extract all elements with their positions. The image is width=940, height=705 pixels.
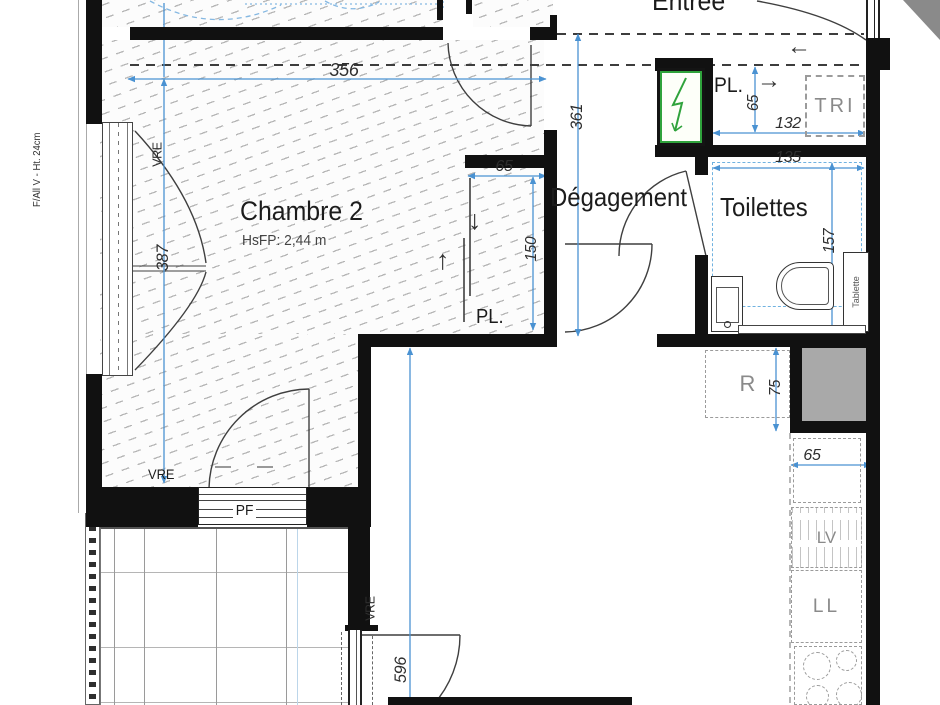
wall (388, 697, 632, 705)
fridge-label: R (740, 371, 756, 397)
chambre2-door-swing (448, 43, 531, 126)
toilet-bowl (781, 267, 829, 305)
wall (358, 347, 371, 487)
wall (530, 27, 557, 40)
upper-room-door-swings (150, 1, 443, 20)
wall (695, 255, 708, 341)
sejour-window-axis-left (341, 632, 343, 705)
wall (695, 150, 708, 175)
wall (466, 0, 472, 14)
dim-entree-closet-width: 132 (762, 115, 814, 133)
wall (358, 334, 557, 347)
burner (836, 650, 857, 671)
dim-counter-depth: 65 (790, 447, 834, 465)
shelf-label: Tablette (851, 276, 861, 308)
left-window-tag: VRE (150, 126, 165, 183)
dim-duct-width: 75 (767, 360, 785, 417)
tri-sorting-zone: TRI (805, 75, 865, 137)
washing-machine-label: LL (813, 596, 840, 618)
left-window-casement-bottom (135, 272, 206, 370)
washbasin-tap (724, 321, 731, 328)
wall (544, 130, 557, 341)
entree-closet-label: PL. (714, 74, 743, 98)
dim-chambre-depth: 387 (153, 230, 173, 287)
toilettes-door-leaf (686, 171, 706, 256)
entree-door-frame (866, 0, 880, 38)
sejour-window (348, 630, 362, 705)
tri-label: TRI (814, 95, 855, 118)
arrow-down-icon: ↓ (468, 205, 482, 236)
placard-sliding-doors (464, 178, 470, 322)
burner (803, 652, 831, 680)
dim-chambre-closet-width: 65 (482, 158, 526, 176)
room-label-chambre2: Chambre 2 (240, 196, 363, 227)
room-label-degagement: Dégagement (550, 182, 687, 213)
wall (655, 145, 866, 157)
dim-entree-closet-depth: 65 (745, 75, 763, 132)
left-window-spec-label: F/All V - Ht. 24cm (32, 99, 43, 242)
duct-shaft (802, 348, 866, 421)
floor-plan: F/All V - Ht. 24cm PF TRI Tablette R LV (0, 0, 940, 705)
electrical-panel (660, 71, 702, 143)
dim-toilettes-width: 135 (762, 149, 814, 167)
arrow-up-icon: ↑ (436, 245, 450, 276)
wall (130, 27, 443, 40)
washing-machine-zone: LL (791, 570, 862, 643)
room-label-entree: Entrée (652, 0, 725, 17)
burner (806, 685, 829, 705)
room-label-toilettes: Toilettes (720, 192, 808, 223)
burner (836, 682, 862, 705)
washbasin-bowl (716, 287, 739, 323)
wall (704, 58, 713, 157)
chambre-closet-label: PL. (476, 306, 504, 329)
dim-degagement-length: 361 (567, 89, 587, 146)
cooktop-zone (794, 646, 862, 705)
shelf-tablette: Tablette (843, 252, 869, 332)
washbasin (711, 276, 743, 332)
sejour-door-swing (433, 635, 460, 705)
dim-sejour-length: 596 (391, 642, 411, 699)
sejour-window-tag: VRE (363, 580, 378, 637)
french-window-door-swing (209, 389, 309, 488)
french-window-label: PF (233, 502, 256, 519)
wall (550, 15, 557, 27)
left-window (102, 122, 133, 376)
chambre-door-tag: VRE (148, 466, 174, 482)
toilettes-pipe-box (738, 325, 866, 334)
dim-toilettes-depth: 157 (821, 213, 839, 270)
dishwasher-zone: LV (791, 507, 862, 568)
dim-chambre-closet-depth: 150 (523, 221, 541, 278)
sejour-window-axis-right (372, 636, 374, 705)
dishwasher-label: LV (817, 528, 837, 548)
arrow-left-icon: ← (787, 33, 811, 61)
wall (879, 38, 890, 70)
lightning-icon (662, 73, 700, 139)
dim-chambre-width: 356 (318, 60, 370, 81)
wall (307, 487, 371, 527)
wall (86, 487, 198, 527)
wall (437, 0, 443, 20)
plan-cut-triangle (903, 0, 940, 40)
chambre2-ceiling-note: HsFP: 2,44 m (242, 232, 326, 249)
wall (86, 0, 102, 124)
